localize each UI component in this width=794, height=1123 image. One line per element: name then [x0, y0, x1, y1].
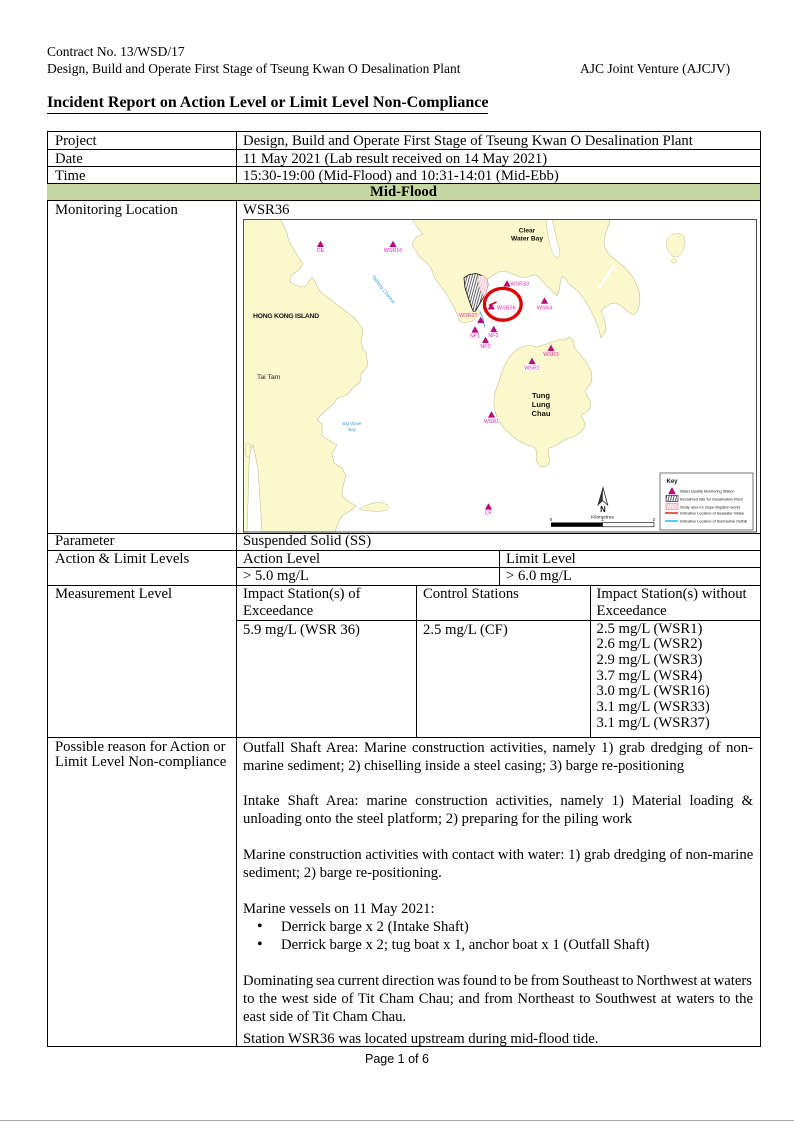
svg-text:Lung: Lung — [532, 400, 551, 409]
svg-text:WSR16: WSR16 — [384, 248, 403, 254]
svg-text:Indicative Location of Submari: Indicative Location of Submarine Outfall — [680, 520, 747, 524]
svg-text:N: N — [600, 505, 606, 514]
svg-text:Key: Key — [667, 479, 679, 485]
svg-text:Reclaimed Site for Desalinatio: Reclaimed Site for Desalination Plant — [680, 498, 744, 502]
svg-text:WSR37: WSR37 — [459, 313, 478, 319]
svg-text:Big Wave: Big Wave — [343, 421, 362, 426]
svg-text:Clear: Clear — [519, 228, 536, 235]
svg-text:Bay: Bay — [348, 427, 356, 432]
svg-text:HONG KONG ISLAND: HONG KONG ISLAND — [253, 313, 319, 320]
svg-text:NF1: NF1 — [470, 334, 480, 340]
svg-text:Water Quality Monitoring Stati: Water Quality Monitoring Station — [680, 490, 735, 494]
svg-text:WSR2: WSR2 — [524, 366, 540, 372]
svg-text:Indicative Location of Seawate: Indicative Location of Seawater Intake — [680, 512, 744, 516]
svg-text:CE: CE — [317, 248, 325, 254]
svg-text:WSR4: WSR4 — [537, 306, 553, 312]
svg-text:Tung: Tung — [532, 391, 550, 400]
svg-text:WSR3: WSR3 — [543, 352, 559, 358]
svg-text:CF: CF — [485, 511, 493, 517]
svg-text:Chau: Chau — [532, 409, 551, 418]
svg-text:NF3: NF3 — [480, 344, 490, 350]
svg-text:WSR36: WSR36 — [497, 306, 516, 312]
svg-text:NF2: NF2 — [488, 333, 498, 339]
svg-text:Water Bay: Water Bay — [511, 236, 543, 243]
svg-text:Study area for slope irrigatio: Study area for slope irrigation works — [680, 506, 741, 510]
svg-text:WSR33: WSR33 — [511, 282, 530, 288]
svg-text:Tai Tam: Tai Tam — [257, 374, 281, 381]
svg-text:WSR1: WSR1 — [484, 419, 500, 425]
